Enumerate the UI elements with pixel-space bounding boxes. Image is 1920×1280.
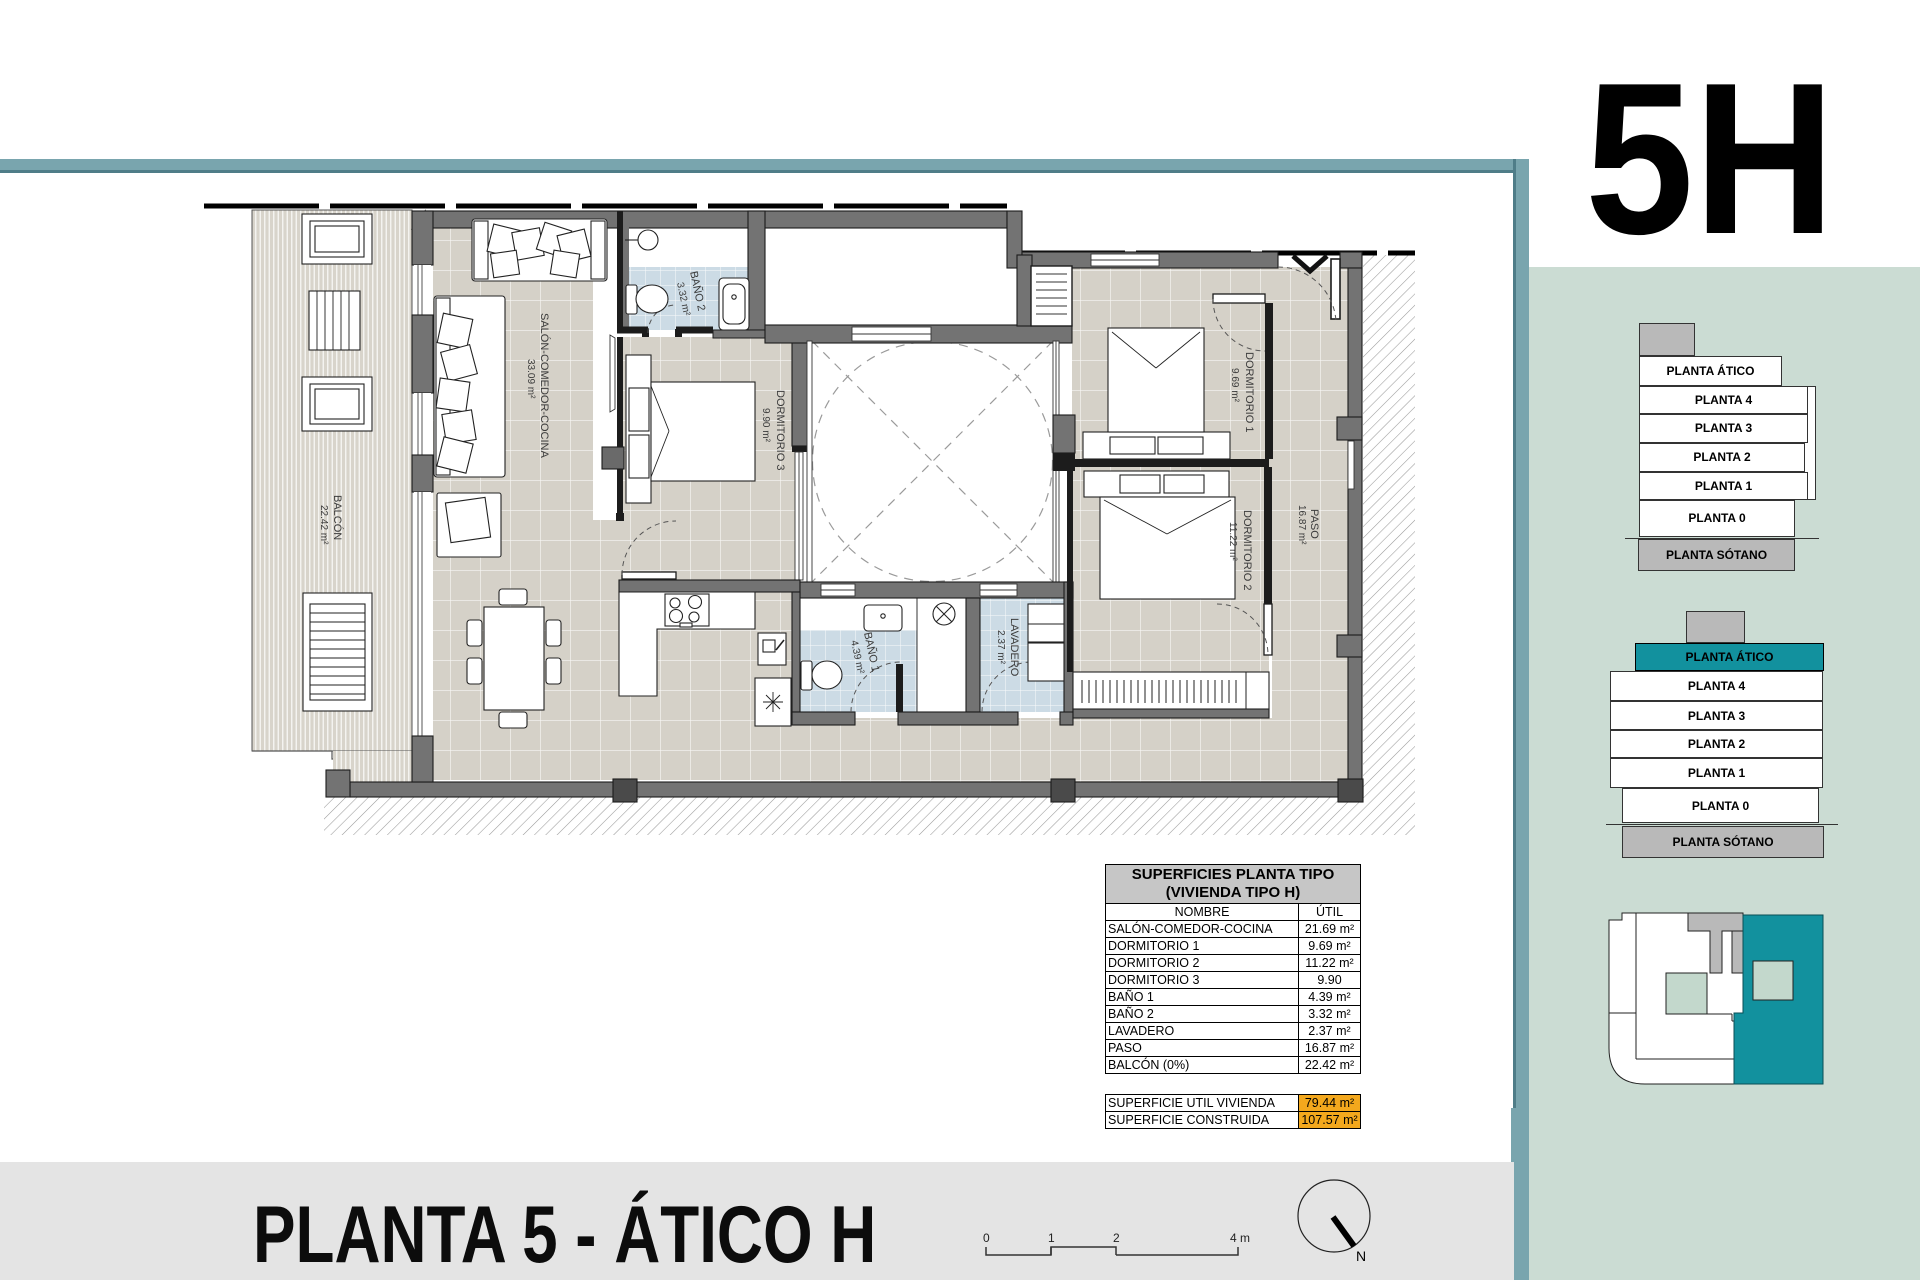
svg-text:16.87 m²: 16.87 m² xyxy=(1296,505,1307,545)
svg-text:BALCÓN: BALCÓN xyxy=(331,495,344,540)
svg-text:DORMITORIO 3: DORMITORIO 3 xyxy=(774,390,786,470)
svg-text:DORMITORIO 1: DORMITORIO 1 xyxy=(1243,352,1255,432)
svg-text:9.90 m²: 9.90 m² xyxy=(760,408,771,443)
svg-text:2: 2 xyxy=(1113,1231,1120,1245)
svg-text:33.09 m²: 33.09 m² xyxy=(525,359,536,399)
svg-text:2.37 m²: 2.37 m² xyxy=(995,630,1006,665)
svg-text:DORMITORIO 2: DORMITORIO 2 xyxy=(1241,510,1253,590)
svg-text:11.22 m²: 11.22 m² xyxy=(1227,522,1238,561)
svg-text:22.42 m²: 22.42 m² xyxy=(318,505,329,545)
svg-text:0: 0 xyxy=(983,1231,990,1245)
svg-text:4 m: 4 m xyxy=(1230,1231,1250,1245)
svg-text:9.69 m²: 9.69 m² xyxy=(1229,368,1240,403)
svg-text:PASO: PASO xyxy=(1308,509,1320,539)
svg-text:LAVADERO: LAVADERO xyxy=(1008,618,1020,677)
svg-text:SALÓN-COMEDOR-COCINA: SALÓN-COMEDOR-COCINA xyxy=(538,313,551,459)
svg-text:N: N xyxy=(1356,1248,1366,1264)
svg-text:5H: 5H xyxy=(1585,64,1835,244)
svg-text:1: 1 xyxy=(1048,1231,1055,1245)
